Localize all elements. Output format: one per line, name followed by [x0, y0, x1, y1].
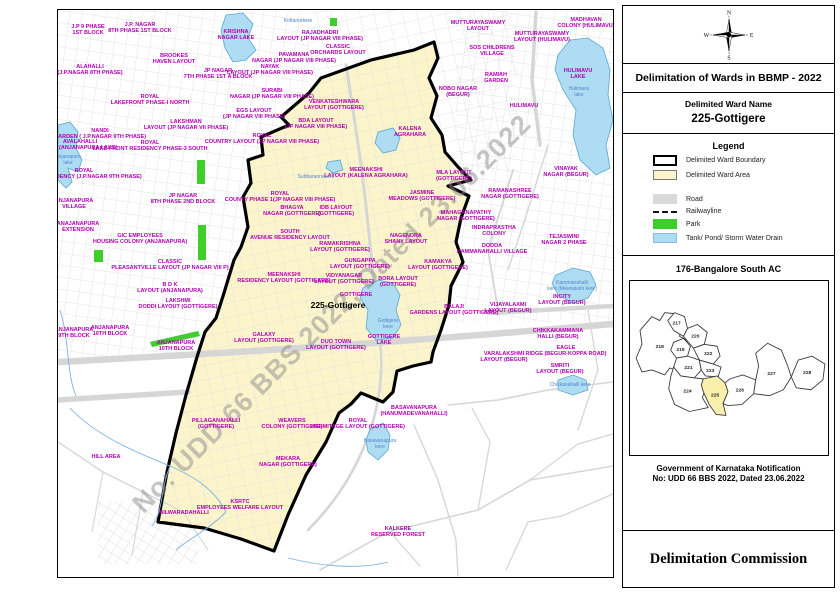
map-label: ANAJANAPURAEXTENSION — [58, 221, 99, 233]
compass-east-label: E — [749, 33, 753, 39]
map-label: HULIMAVU — [510, 103, 539, 109]
map-label: BASAVANAPURA(HANUMADEVANAHALLI) — [380, 405, 447, 417]
map-label: Subbaraonakere — [298, 174, 335, 180]
compass-south-label: S — [727, 55, 730, 60]
map-label: ANJANAPURA10TH BLOCK — [91, 325, 130, 337]
road — [58, 392, 188, 400]
assembly-constituency-section: 176-Bangalore South AC 21821722021922222… — [623, 256, 834, 531]
legend-item-road: Road — [653, 194, 834, 204]
legend-item-boundary: Delimited Ward Boundary — [653, 155, 834, 166]
ac-ward-number: 226 — [735, 388, 743, 394]
ac-ward-number: 227 — [767, 371, 775, 377]
legend-item-area: Delimited Ward Area — [653, 170, 834, 180]
legend-item-railway: Railwayline — [653, 208, 834, 215]
legend-item-label: Delimited Ward Area — [686, 172, 750, 179]
ac-map-frame: 218217220219222221223224225226227228 — [629, 280, 829, 456]
map-label: HILL AREA — [91, 454, 120, 460]
compass-west-label: W — [703, 33, 709, 39]
map-label: Chikkanahalli kere — [550, 382, 591, 388]
ac-ward-number: 222 — [704, 351, 712, 357]
ac-ward-number: 225 — [711, 393, 719, 399]
compass-section: N S E W — [623, 6, 834, 64]
ac-ward-number: 228 — [802, 370, 810, 376]
map-label: MAHAGANAPATHYNAGAR (GOTTIGERE) — [437, 210, 495, 222]
ward-name-section: Delimited Ward Name 225-Gottigere — [623, 93, 834, 134]
road — [320, 466, 613, 570]
park — [197, 160, 205, 184]
map-label: RAMANASHREENAGAR (GOTTIGERE) — [481, 188, 539, 200]
railway-swatch — [653, 211, 677, 213]
map-label: VARALAKSHMILAYOUT (BEGUR) — [480, 351, 527, 363]
road-swatch — [653, 194, 677, 204]
ward-area-swatch — [653, 170, 677, 180]
ac-ward-number: 219 — [676, 347, 684, 353]
map-label: Kottanurkere — [284, 18, 313, 24]
ward-name-value: 225-Gottigere — [623, 113, 834, 125]
info-panel: N S E W Delimitation of Wards in BBMP - … — [622, 5, 835, 588]
park — [94, 250, 103, 262]
legend-item-label: Park — [686, 221, 700, 228]
legend-item-label: Delimited Ward Boundary — [686, 157, 766, 164]
map-label: RAMIAHGARDEN — [484, 72, 508, 84]
notification-line2: No: UDD 66 BBS 2022, Dated 23.06.2022 — [623, 474, 834, 484]
ac-title: 176-Bangalore South AC — [623, 264, 834, 274]
commission-title: Delimitation Commission — [623, 531, 834, 587]
notification-text: Government of Karnataka Notification No:… — [623, 464, 834, 485]
panel-title: Delimitation of Wards in BBMP - 2022 — [623, 64, 834, 93]
notification-line1: Government of Karnataka Notification — [623, 464, 834, 474]
map-label: 225-Gottigere — [311, 300, 366, 310]
map-label: MUTTURAYASWAMYLAYOUT (HULIMAVU) — [514, 31, 570, 43]
legend-item-label: Tank/ Pond/ Storm Water Drain — [686, 235, 783, 242]
map-label: SMRITILAYOUT (BEGUR) — [536, 363, 583, 375]
legend-item-park: Park — [653, 219, 834, 229]
map-label: BILWARADAHALLI — [159, 510, 209, 516]
legend: Legend Delimited Ward Boundary Delimited… — [623, 134, 834, 256]
map-label: KALKERERESERVED FOREST — [371, 526, 426, 538]
map-label: MLA LAYOUT(GOTTIGERE) — [436, 170, 472, 182]
map-label: ANJANAPURA9TH BLOCK — [58, 327, 93, 339]
ac-overview-map: 218217220219222221223224225226227228 — [630, 281, 828, 455]
ac-ward-number: 223 — [706, 368, 714, 374]
legend-item-water: Tank/ Pond/ Storm Water Drain — [653, 233, 834, 243]
map-label: NAGENDRASHANY LAYOUT — [385, 233, 428, 245]
road — [414, 425, 458, 576]
compass-rose-icon: N S E W — [669, 9, 789, 61]
map-label: PILLAGANAHALLI(GOTTIGERE) — [192, 418, 241, 430]
map-label: ANJANAPURA10TH BLOCK — [157, 340, 196, 352]
ac-ward-number: 218 — [655, 344, 663, 350]
map-label: IDB LAYOUT(GOTTIGERE) — [318, 205, 354, 217]
map-label: GOTTIGERE — [340, 292, 373, 298]
ward-map: No: UDD 66 BBS 2022, Dated 23.06.2022J.P… — [58, 10, 613, 577]
ac-ward — [753, 343, 791, 395]
map-label: BORA LAYOUT(GOTTIGERE) — [378, 276, 418, 288]
map-label: CHIKKAKAMMANAHALLI (BEGUR) — [533, 328, 583, 340]
legend-item-label: Road — [686, 196, 703, 203]
ac-ward-number: 224 — [683, 389, 691, 395]
compass-north-label: N — [726, 10, 731, 16]
ac-ward-number: 217 — [672, 321, 680, 327]
ac-ward-number: 220 — [691, 333, 699, 339]
park — [330, 18, 337, 26]
road — [472, 408, 490, 510]
park-swatch — [653, 219, 677, 229]
legend-item-label: Railwayline — [686, 208, 721, 215]
ward-boundary-swatch — [653, 155, 677, 166]
map-label: VENKATESHWARALAYOUT (GOTTIGERE) — [304, 99, 364, 111]
map-label: J.P 9 PHASE1ST BLOCK — [71, 24, 105, 36]
legend-title: Legend — [623, 141, 834, 151]
ac-ward-number: 221 — [684, 365, 692, 371]
ward-map-frame: No: UDD 66 BBS 2022, Dated 23.06.2022J.P… — [57, 9, 614, 578]
map-label: KALENAAGRAHARA — [394, 126, 426, 138]
road — [506, 494, 613, 570]
park — [198, 225, 206, 260]
ward-name-label: Delimited Ward Name — [623, 99, 834, 109]
water-swatch — [653, 233, 677, 243]
